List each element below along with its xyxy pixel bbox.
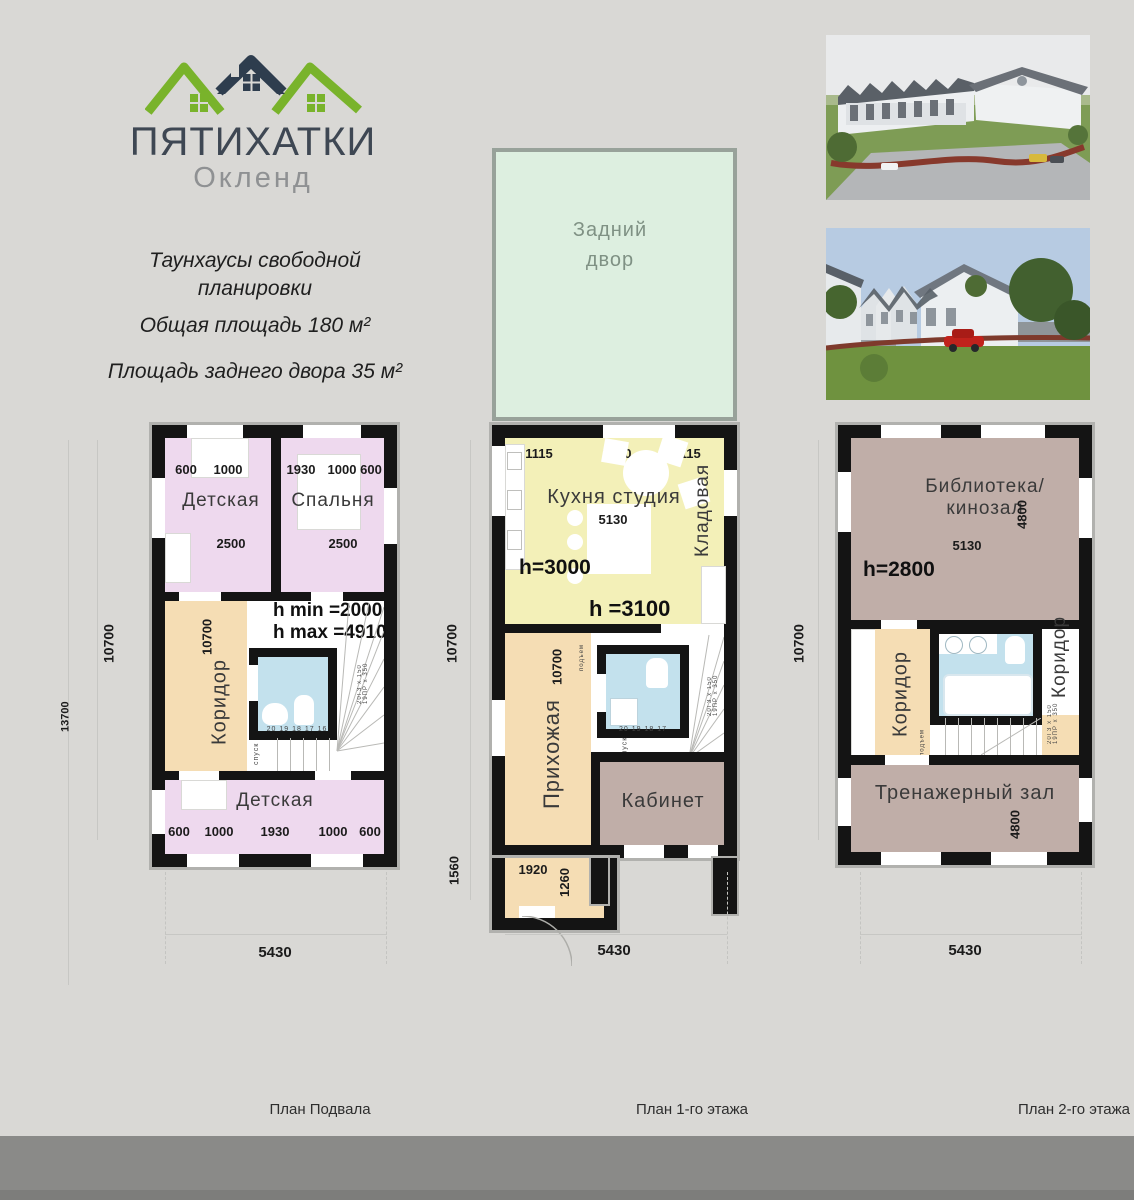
- dim-line: [818, 440, 819, 840]
- door-opening: [249, 665, 258, 701]
- brand-subtitle: Окленд: [108, 162, 398, 195]
- room-label-gym: Тренажерный зал: [867, 782, 1063, 805]
- stool: [567, 534, 583, 550]
- room-label-corridor: Коридор: [207, 654, 233, 750]
- dim-label: 2500: [201, 536, 261, 551]
- window-gap: [492, 700, 505, 756]
- backyard-label: Задний двор: [520, 215, 700, 275]
- caption-second-floor: План 2-го этажа: [1000, 1101, 1130, 1118]
- room-label-nursery: Детская: [171, 490, 271, 512]
- terrace-door-gap: [603, 425, 675, 438]
- sink-icon: [262, 703, 288, 725]
- room-library: [851, 438, 1079, 620]
- window-gap: [724, 470, 737, 516]
- first-height-dim: 10700: [443, 610, 460, 678]
- second-width-dim: 5430: [925, 942, 1005, 959]
- height-note-1: h=3000: [519, 556, 609, 580]
- dim-label-vertical: 10700: [549, 636, 565, 698]
- stair-step-numbers: 20 19 18 17 16: [253, 726, 341, 733]
- door-opening: [597, 674, 606, 712]
- window-gap: [187, 854, 239, 867]
- appliance-icon: [507, 452, 522, 470]
- window-gap: [1079, 778, 1092, 822]
- dim-line: [860, 934, 1082, 935]
- first-vestibule-dim: 1560: [446, 845, 462, 897]
- wall: [505, 624, 661, 633]
- stair-step-numbers: 20 19 18 17: [597, 726, 689, 733]
- stool: [567, 510, 583, 526]
- window-gap: [1079, 478, 1092, 538]
- room-label-cabinet: Кабинет: [605, 790, 721, 813]
- caption-first-floor: План 1-го этажа: [612, 1101, 772, 1118]
- room-label-kitchen: Кухня студия: [539, 486, 689, 509]
- dim-label: 1930: [249, 824, 301, 839]
- window-gap: [152, 478, 165, 538]
- toilet-icon: [294, 695, 314, 725]
- stairs-up-label: подъем: [577, 636, 587, 678]
- closet: [851, 629, 877, 757]
- porch-pillar: [591, 858, 608, 904]
- dim-line: [165, 934, 387, 935]
- floor-plan-basement: 600 1000 2500 1930 1000 600 2500 Детская…: [152, 425, 397, 867]
- brand-title: ПЯТИХАТКИ: [108, 120, 398, 165]
- stairs-down-label: спуск: [251, 736, 262, 772]
- dim-label-vertical: 1260: [557, 862, 572, 904]
- appliance-icon: [507, 530, 522, 550]
- dim-guide: [860, 872, 861, 964]
- stairs-treads: [265, 738, 337, 771]
- window-gap: [624, 845, 664, 858]
- dim-line: [470, 440, 471, 900]
- door-opening: [315, 771, 351, 780]
- bathtub-icon: [943, 674, 1033, 716]
- door-opening: [881, 620, 917, 629]
- window-gap: [384, 488, 397, 544]
- door-opening: [179, 592, 221, 601]
- window-gap: [991, 852, 1047, 865]
- bathroom: [930, 625, 1042, 725]
- floor-plan-second: Библиотека/ кинозал 4800 5130 h=2800 Кор…: [838, 425, 1092, 865]
- wall: [591, 752, 600, 845]
- dim-guide: [386, 872, 387, 964]
- dim-label: 600: [163, 824, 195, 839]
- room-gym: [851, 765, 1079, 852]
- appliance-icon: [507, 490, 522, 510]
- flyer-page: ПЯТИХАТКИ Окленд Таунхаусы свободной пла…: [0, 0, 1134, 1200]
- height-note-2: h =3100: [589, 596, 705, 622]
- window-gap: [981, 425, 1045, 438]
- room-label-library-1: Библиотека/: [907, 476, 1063, 498]
- toilet-icon: [1005, 636, 1025, 664]
- window-gap: [311, 854, 363, 867]
- room-label-corridor-left: Коридор: [887, 644, 915, 744]
- stairs-spec-label: 20ГЗ x 150 19ПР x 350: [707, 660, 719, 716]
- dim-label: 600: [167, 462, 205, 477]
- porch-wall: [713, 858, 737, 914]
- dim-label: 600: [355, 824, 385, 839]
- dim-label: 1930: [278, 462, 324, 477]
- dim-guide: [727, 872, 728, 964]
- backyard-area-text: Площадь заднего двора 35 м²: [60, 358, 450, 386]
- dim-guide: [1081, 872, 1082, 964]
- furniture: [165, 533, 191, 583]
- dim-label: 5130: [583, 512, 643, 527]
- dim-label: 600: [357, 462, 385, 477]
- dim-label-vertical: 4800: [1014, 490, 1030, 540]
- door-opening: [179, 771, 219, 780]
- room-label-bedroom: Спальня: [285, 490, 381, 512]
- dim-label: 1000: [311, 824, 355, 839]
- logo-roofs-icon: [145, 50, 369, 120]
- backyard-plan: [492, 148, 737, 421]
- window-gap: [838, 472, 851, 532]
- sink-icon: [945, 636, 963, 654]
- window-gap: [688, 845, 718, 858]
- basement-total-height-dim: 13700: [58, 688, 73, 746]
- intro-line-1: Таунхаусы свободной: [95, 247, 415, 275]
- render-photo-aerial: [826, 35, 1090, 200]
- room-label-hall: Прихожая: [537, 696, 567, 812]
- window-gap: [152, 790, 165, 834]
- dim-guide: [165, 872, 166, 964]
- window-gap: [881, 852, 941, 865]
- window-gap: [492, 446, 505, 516]
- dim-label-vertical: 4800: [1007, 802, 1023, 848]
- window-gap: [838, 778, 851, 826]
- basement-height-dim: 10700: [100, 610, 117, 678]
- stairs-diagonal: [981, 718, 1041, 755]
- door-arc: [520, 916, 572, 968]
- sink-icon: [969, 636, 987, 654]
- room-label-nursery-bottom: Детская: [205, 790, 345, 812]
- dim-label: 5130: [937, 538, 997, 553]
- window-gap: [187, 425, 243, 438]
- wall: [591, 752, 724, 762]
- chair: [601, 438, 629, 466]
- stairs-spec-label: 20ГЗ x 150 19ПР x 350: [1047, 692, 1059, 744]
- second-height-dim: 10700: [790, 610, 807, 678]
- dim-line: [505, 934, 727, 935]
- basement-width-dim: 5430: [235, 944, 315, 961]
- dim-label: 1000: [197, 824, 241, 839]
- total-area-text: Общая площадь 180 м²: [80, 312, 430, 340]
- first-width-dim: 5430: [574, 942, 654, 959]
- height-note: h=2800: [863, 558, 959, 582]
- bathroom: [597, 645, 689, 738]
- toilet-icon: [646, 658, 668, 688]
- washer-icon: [610, 698, 638, 726]
- stairs-spec-label: 20ГЗ x 150 19ПР x 350: [357, 648, 369, 704]
- dim-label: 1920: [507, 862, 559, 877]
- caption-basement: План Подвала: [240, 1101, 400, 1118]
- dim-label: 2500: [313, 536, 373, 551]
- room-label-library-2: кинозал: [907, 498, 1063, 520]
- render-photo-street: [826, 228, 1090, 400]
- dim-line: [97, 440, 98, 840]
- window-gap: [303, 425, 361, 438]
- dim-label: 1000: [205, 462, 251, 477]
- intro-line-2: планировки: [95, 275, 415, 303]
- window-gap: [881, 425, 941, 438]
- door-opening: [885, 755, 929, 765]
- room-label-pantry: Кладовая: [691, 454, 715, 566]
- floor-plan-first: 1115 2900 1115 Кухня студия 5130 Кладова…: [492, 425, 737, 858]
- footer-bottom-strip: [0, 1190, 1134, 1200]
